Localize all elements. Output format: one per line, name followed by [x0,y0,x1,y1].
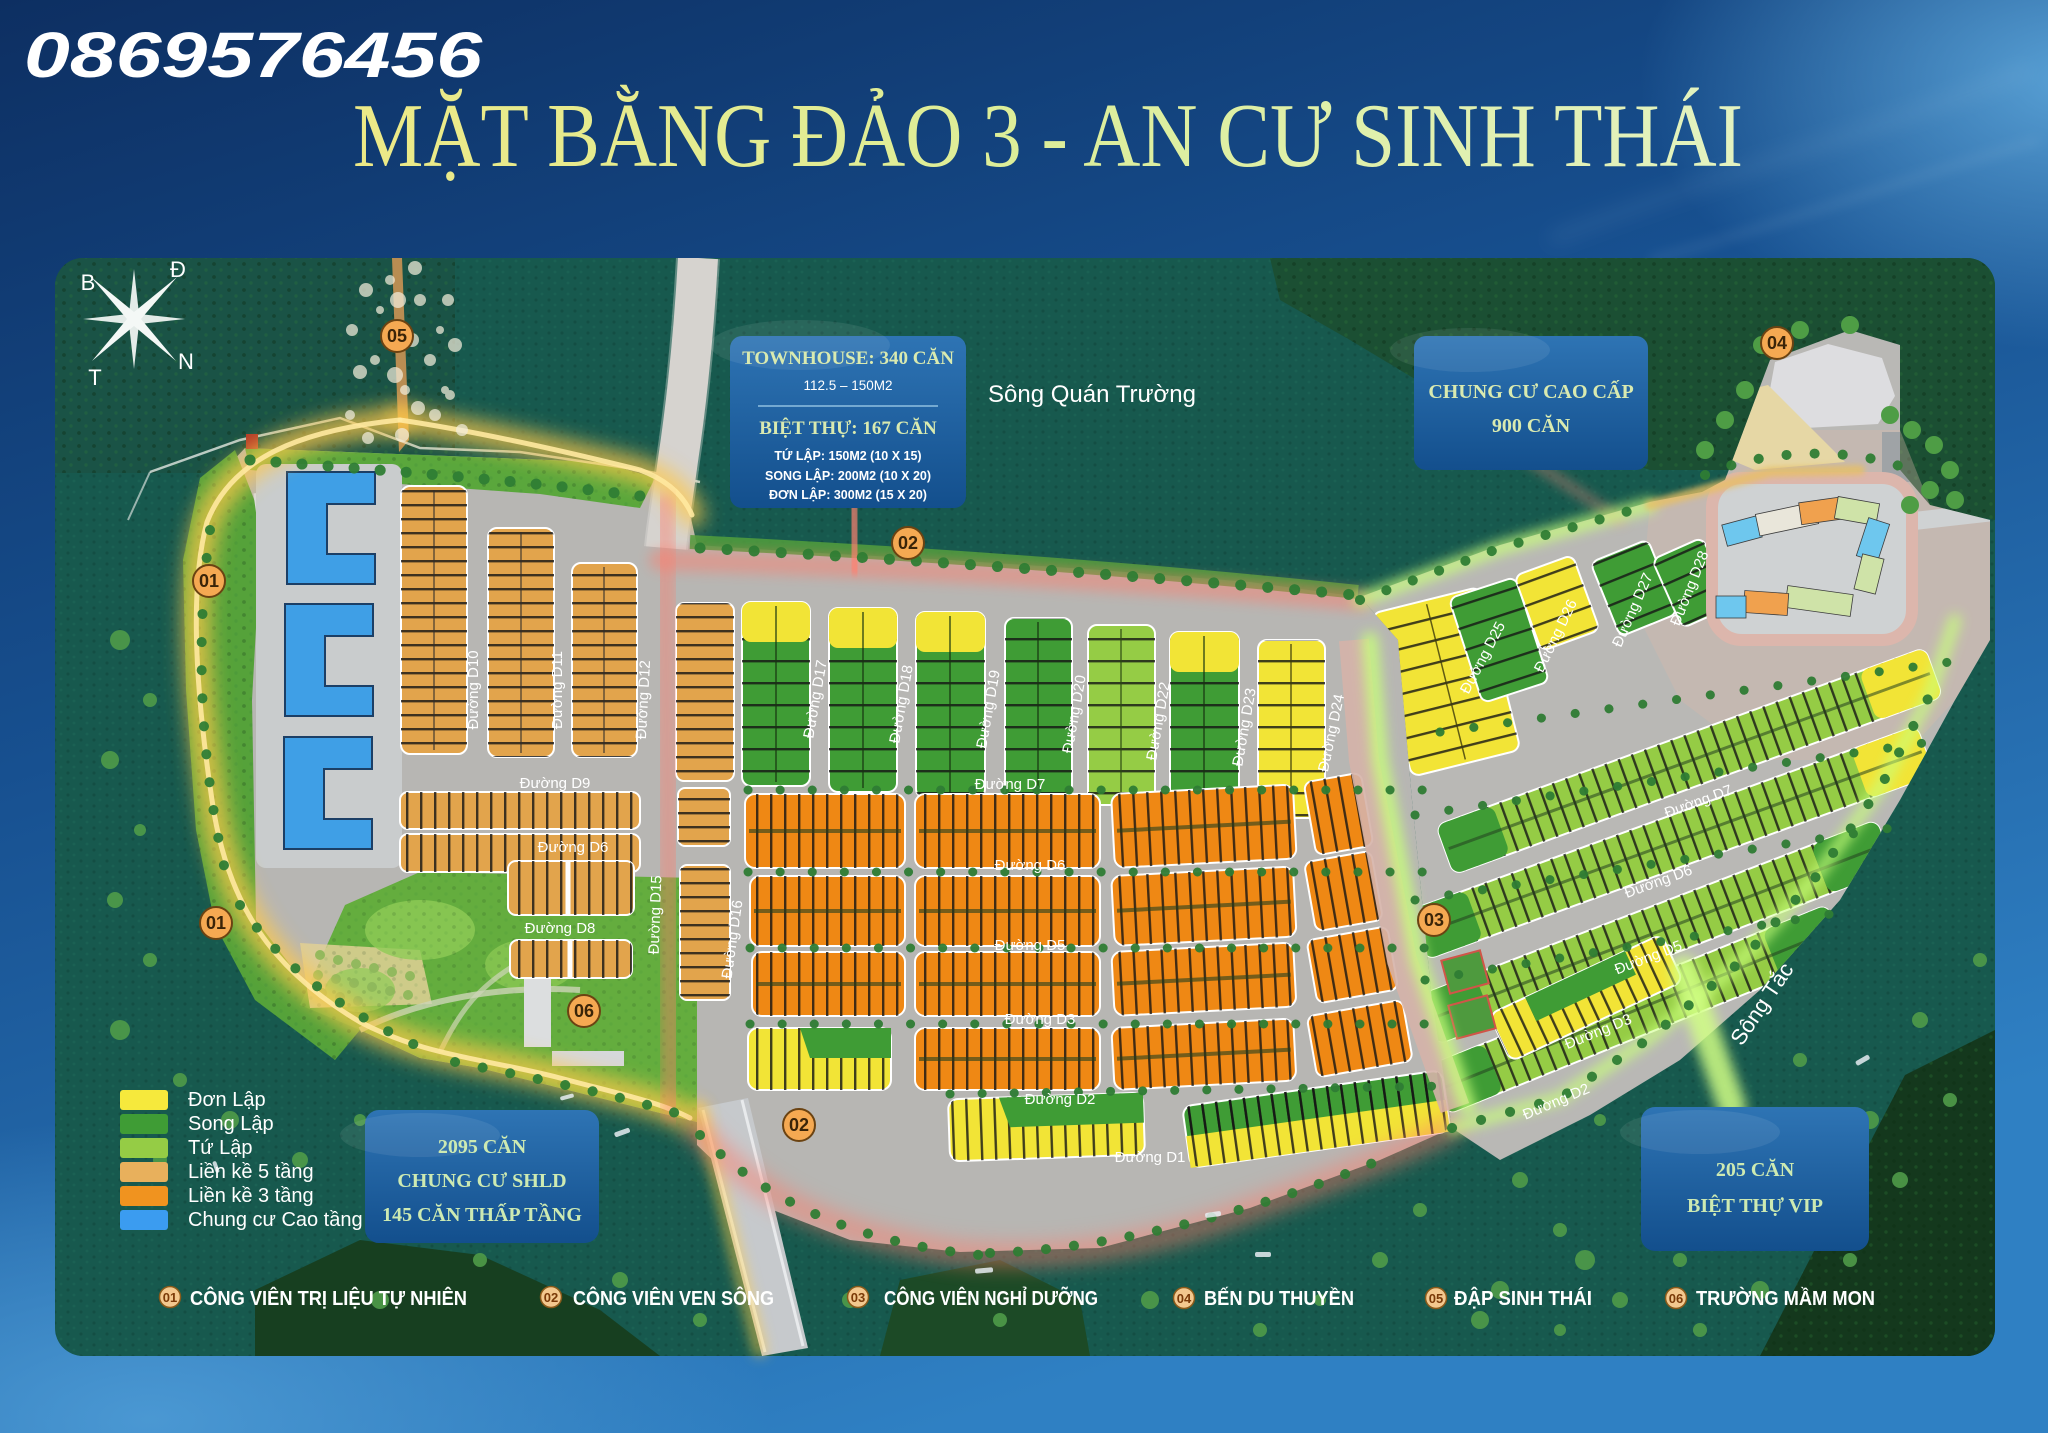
svg-text:Đường D2: Đường D2 [1025,1091,1096,1108]
svg-text:Song Lập: Song Lập [188,1113,274,1135]
svg-text:Đường D5: Đường D5 [995,937,1066,954]
svg-text:ĐƠN LẬP: 300M2 (15 X 20): ĐƠN LẬP: 300M2 (15 X 20) [769,487,927,502]
svg-text:MẶT BẰNG ĐẢO 3 - AN CƯ SINH TH: MẶT BẰNG ĐẢO 3 - AN CƯ SINH THÁI [353,85,1743,186]
svg-text:TỨ LẬP: 150M2 (10 X 15): TỨ LẬP: 150M2 (10 X 15) [774,448,921,463]
svg-text:CÔNG VIÊN VEN SÔNG: CÔNG VIÊN VEN SÔNG [573,1286,774,1310]
svg-text:Đ: Đ [170,257,186,282]
svg-text:Đường D3: Đường D3 [1005,1011,1076,1028]
svg-text:Đường D10: Đường D10 [465,650,482,729]
svg-text:02: 02 [898,533,918,553]
svg-text:CÔNG VIÊN NGHỈ DƯỠNG: CÔNG VIÊN NGHỈ DƯỠNG [884,1286,1098,1310]
svg-text:Đường D15: Đường D15 [646,875,666,955]
svg-text:CÔNG VIÊN TRỊ LIỆU TỰ NHIÊN: CÔNG VIÊN TRỊ LIỆU TỰ NHIÊN [190,1286,467,1310]
svg-text:BIỆT THỰ: 167 CĂN: BIỆT THỰ: 167 CĂN [759,417,937,439]
svg-text:900 CĂN: 900 CĂN [1492,413,1571,437]
svg-text:Tứ Lập: Tứ Lập [188,1137,253,1159]
svg-text:TRƯỜNG MẦM MON: TRƯỜNG MẦM MON [1696,1286,1875,1310]
svg-text:SONG LẬP: 200M2 (10 X 20): SONG LẬP: 200M2 (10 X 20) [765,468,931,483]
svg-text:Đường D9: Đường D9 [520,775,591,792]
svg-text:01: 01 [199,571,219,591]
svg-text:ĐẬP SINH THÁI: ĐẬP SINH THÁI [1454,1286,1592,1310]
svg-text:03: 03 [1424,910,1444,930]
svg-text:01: 01 [163,1290,177,1305]
svg-text:Đường D11: Đường D11 [549,651,566,729]
svg-text:TOWNHOUSE: 340 CĂN: TOWNHOUSE: 340 CĂN [742,347,954,369]
svg-text:Liền kề 3 tầng: Liền kề 3 tầng [188,1185,314,1207]
svg-text:05: 05 [1429,1291,1443,1306]
svg-text:T: T [88,365,101,390]
svg-text:06: 06 [1669,1291,1683,1306]
svg-text:04: 04 [1767,333,1787,353]
svg-text:B: B [81,270,96,295]
svg-text:112.5 – 150M2: 112.5 – 150M2 [803,378,892,393]
svg-text:145 CĂN THẤP TẦNG: 145 CĂN THẤP TẦNG [382,1202,582,1226]
svg-text:01: 01 [206,913,226,933]
svg-text:2095 CĂN: 2095 CĂN [438,1134,527,1158]
svg-text:CHUNG CƯ CAO CẤP: CHUNG CƯ CAO CẤP [1428,379,1633,403]
svg-text:CHUNG CƯ SHLD: CHUNG CƯ SHLD [397,1170,566,1192]
svg-text:05: 05 [387,326,407,346]
svg-text:BẾN DU THUYỀN: BẾN DU THUYỀN [1204,1287,1354,1310]
svg-text:Đơn Lập: Đơn Lập [188,1089,266,1111]
svg-text:04: 04 [1177,1291,1192,1306]
svg-text:Đường D7: Đường D7 [975,776,1046,793]
svg-text:205 CĂN: 205 CĂN [1716,1157,1795,1181]
svg-text:Sông Quán Trường: Sông Quán Trường [988,381,1196,408]
svg-text:N: N [178,349,194,374]
svg-text:Liền kề 5 tầng: Liền kề 5 tầng [188,1161,314,1183]
svg-text:Đường D8: Đường D8 [525,920,596,937]
svg-text:03: 03 [851,1290,865,1305]
svg-text:02: 02 [789,1115,809,1135]
svg-text:0869576456: 0869576456 [24,19,483,91]
svg-text:02: 02 [544,1290,558,1305]
svg-text:Chung cư Cao tầng: Chung cư Cao tầng [188,1209,363,1231]
svg-text:Đường D6: Đường D6 [538,839,609,856]
svg-text:06: 06 [574,1001,594,1021]
svg-text:BIỆT THỰ VIP: BIỆT THỰ VIP [1687,1194,1823,1217]
svg-text:Đường D6: Đường D6 [995,857,1066,874]
svg-text:Đường D1: Đường D1 [1115,1149,1186,1166]
